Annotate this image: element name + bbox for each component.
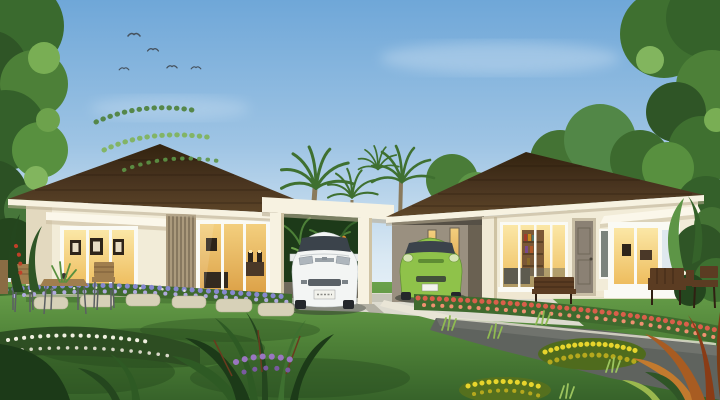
framed-artworks xyxy=(70,238,124,255)
house-rendering xyxy=(0,0,720,400)
rendering-canvas xyxy=(0,0,720,400)
car-windshield xyxy=(298,236,351,252)
chair-right-back xyxy=(94,262,114,277)
bench-right-back xyxy=(650,268,684,286)
bay-window-base xyxy=(604,290,684,298)
table-set-top xyxy=(692,280,718,287)
green-car-plate xyxy=(422,284,438,291)
door-handle xyxy=(590,258,593,261)
bumper-intake xyxy=(308,279,341,286)
bench-mid-back xyxy=(534,277,574,291)
louver-slats xyxy=(169,216,193,294)
